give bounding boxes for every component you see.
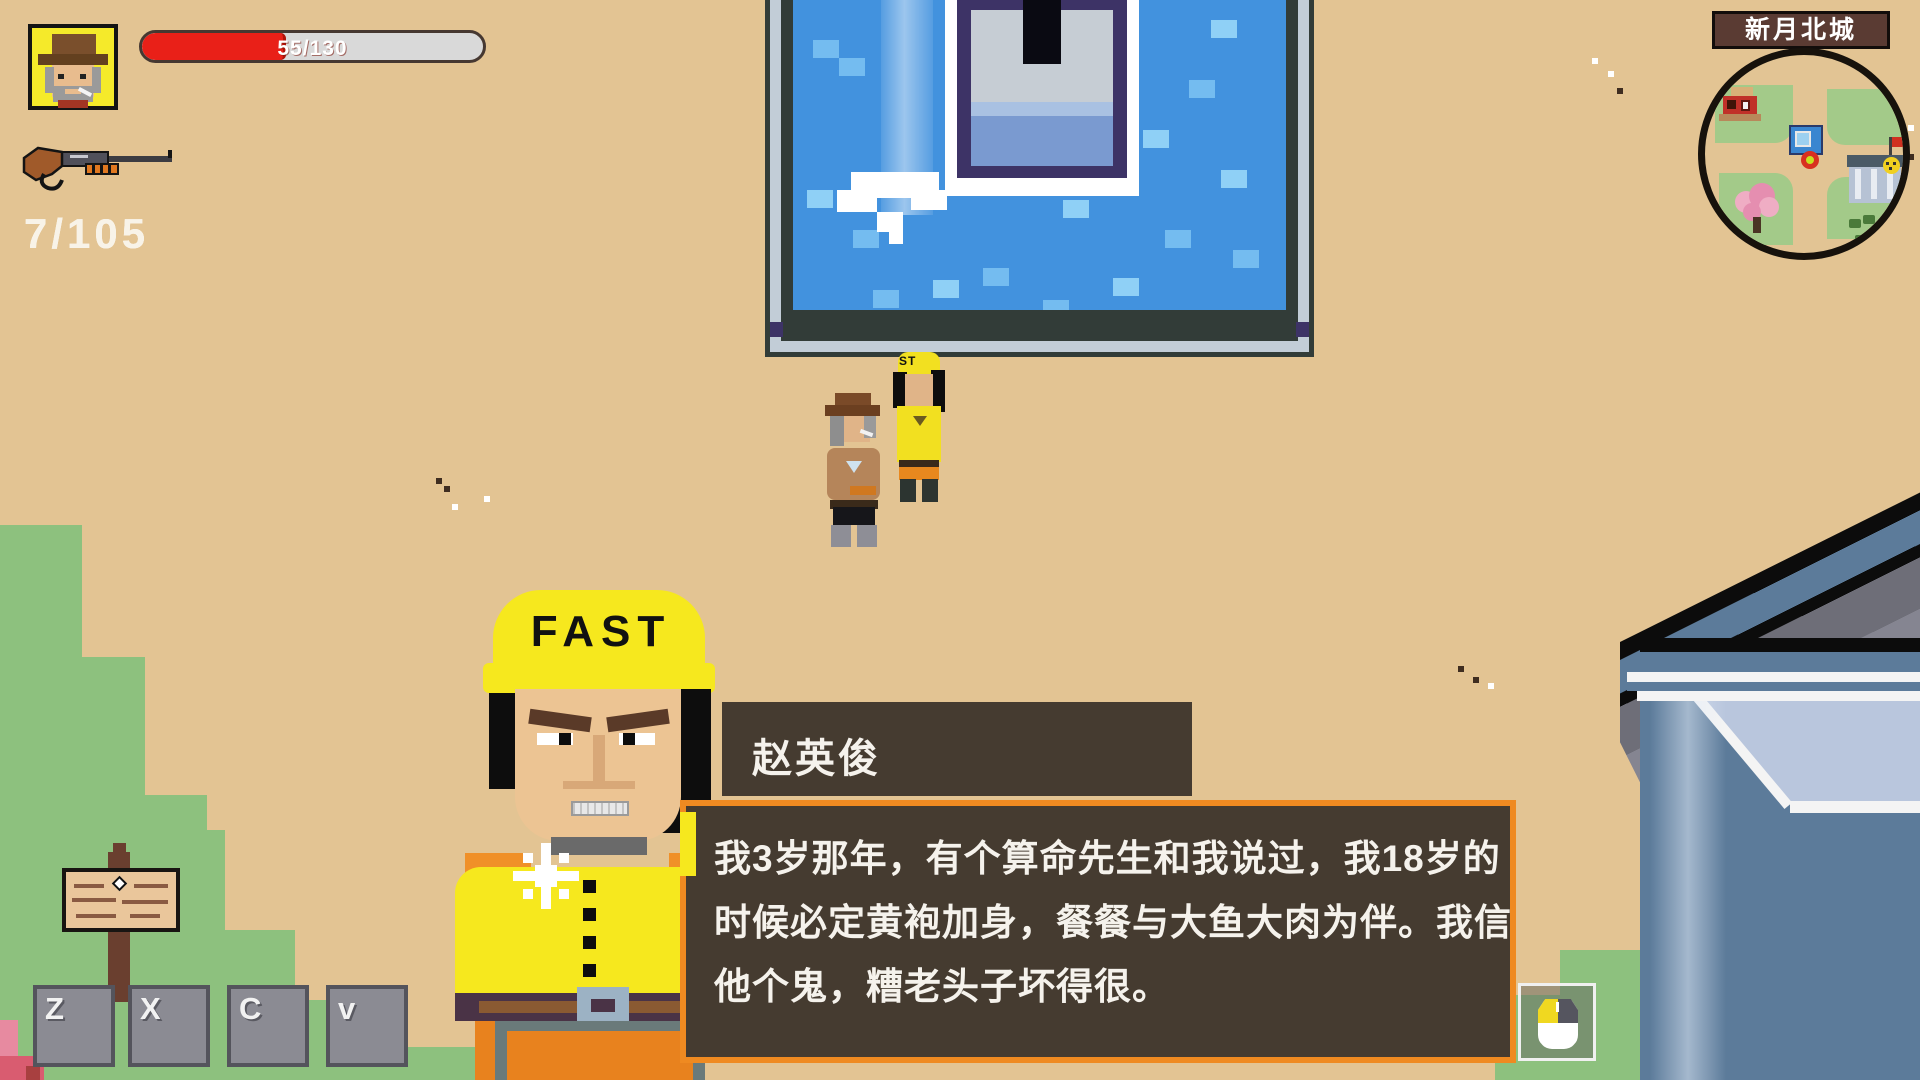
npc-character[interactable]: ST (893, 352, 945, 502)
health-value: 55/130 (142, 37, 483, 61)
mouse-icon (1538, 999, 1578, 1049)
flag-icon (1892, 137, 1906, 147)
sparkle-icon (112, 876, 128, 892)
window-reflection (1650, 701, 1726, 1080)
minimap (1698, 48, 1910, 260)
key-hint-c[interactable]: C (227, 985, 309, 1067)
speaker-name-box: 赵英俊 (722, 702, 1192, 796)
sign-slot (1023, 0, 1061, 64)
flower-cluster (26, 1066, 40, 1080)
bush-icon (1855, 235, 1867, 244)
key-hint-x[interactable]: X (128, 985, 210, 1067)
sign-board[interactable] (62, 868, 180, 932)
player-character (820, 393, 885, 548)
npc-face (515, 689, 681, 841)
gritted-teeth (571, 801, 629, 816)
helmet-text: FAST (455, 607, 747, 657)
dialog-box[interactable]: 我3岁那年，有个算命先生和我说过，我18岁的 时候必定黄袍加身，餐餐与大鱼大肉为… (680, 800, 1516, 1063)
portrait-shoulder-overlap (680, 812, 696, 876)
ammo-counter: 7/105 (24, 210, 149, 258)
smiley-icon (1883, 157, 1900, 174)
tree-icon (1735, 183, 1781, 235)
key-hint-v[interactable]: v (326, 985, 408, 1067)
grass-patch (0, 657, 145, 797)
game-viewport: ST FAST (0, 0, 1920, 1080)
pool-sign (945, 0, 1139, 196)
player-marker (1801, 151, 1819, 169)
pool-building (765, 0, 1314, 357)
speaker-name: 赵英俊 (752, 726, 881, 784)
house-icon (1719, 87, 1759, 121)
pool-water (793, 0, 1286, 310)
health-bar: 55/130 (139, 30, 486, 63)
key-hint-z[interactable]: Z (33, 985, 115, 1067)
npc-cap-text: ST (899, 354, 916, 368)
dialog-line: 我3岁那年，有个算命先生和我说过，我18岁的 (714, 828, 1501, 882)
dialog-line: 时候必定黄袍加身，餐餐与大鱼大肉为伴。我信 (714, 892, 1512, 946)
area-name-banner: 新月北城 (1712, 11, 1890, 49)
shotgun-icon (22, 142, 177, 192)
mouse-hint-button[interactable] (1518, 983, 1596, 1061)
dialog-line: 他个鬼，糟老头子坏得很。 (714, 956, 1170, 1010)
player-avatar (28, 24, 118, 110)
pool-icon (1789, 125, 1823, 155)
bush-icon (1849, 219, 1861, 228)
bush-icon (1863, 215, 1875, 224)
grass-patch (0, 525, 82, 660)
southeast-building (1620, 492, 1920, 1080)
sun-emblem (513, 843, 579, 909)
building-wall (1640, 701, 1920, 1080)
